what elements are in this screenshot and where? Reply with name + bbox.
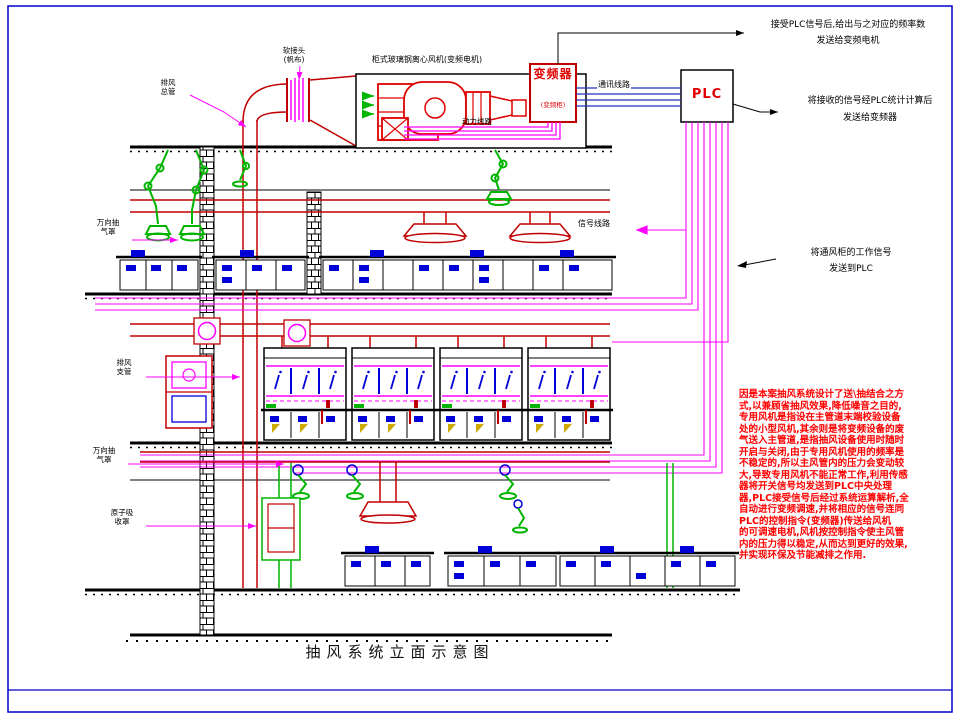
- lab-bench: [341, 546, 434, 586]
- callout-main-duct: 排风总管: [146, 79, 190, 96]
- plc-note-leader: [733, 104, 778, 112]
- roof-elbow-duct: [243, 84, 288, 122]
- callout-atomic-absorption: 原子吸收罩: [98, 509, 146, 526]
- fume-hood: [349, 336, 437, 440]
- plc-label: PLC: [681, 88, 733, 103]
- signal-line-label: 信号线路: [578, 219, 610, 228]
- inlet-cone: [310, 76, 356, 146]
- bench-row-1: [116, 250, 616, 290]
- comm-lines: [576, 88, 681, 106]
- shaft-hatch-mid: [307, 192, 321, 294]
- vav-fan-units: [194, 318, 310, 346]
- fume-hood: [437, 336, 525, 440]
- fan-label: 柜式玻璃钢离心风机(变频电机): [352, 55, 502, 64]
- callout-branch-duct: 排风支管: [102, 359, 146, 376]
- exhaust-hood-level4: [360, 502, 416, 523]
- lab-bench: [319, 250, 616, 290]
- plc-note-line2: 发送给变频器: [782, 113, 958, 123]
- drawing-title: 抽风系统立面示意图: [290, 644, 510, 661]
- callout-flex-joint: 软接头(帆布): [270, 47, 318, 64]
- control-cabinet: [166, 356, 212, 428]
- lab-bench: [116, 250, 202, 290]
- callout-extraction-hood-2: 万向抽气罩: [80, 447, 128, 464]
- bench-row-2: [341, 546, 739, 586]
- lab-bench: [212, 250, 309, 290]
- vfd-note-line2: 发送给变频电机: [740, 36, 956, 46]
- atomic-absorption-unit: [262, 463, 300, 588]
- hood-note-leader: [737, 259, 776, 268]
- fume-hood: [261, 336, 349, 440]
- lab-bench: [556, 546, 739, 586]
- system-description: 因是本案抽风系统设计了送\抽结合之方 式,以兼顾省抽风效果,降低噪音之目的, 专…: [739, 389, 953, 562]
- fume-hood: [525, 336, 613, 440]
- vfd-note-line1: 接受PLC信号后,给出与之对应的频率数: [740, 20, 956, 30]
- vfd-sub-label: (变频柜): [530, 102, 576, 109]
- comm-line-label: 通讯线路: [597, 80, 631, 89]
- flex-connector: [287, 78, 309, 122]
- hood-signal-note-line2: 发送到PLC: [776, 264, 926, 274]
- plc-note-line1: 将接收的信号经PLC统计计算后: [782, 96, 958, 106]
- lab-bench: [444, 546, 560, 586]
- callout-extraction-hood-1: 万向抽气罩: [84, 219, 132, 236]
- vfd-label: 变频器: [530, 68, 576, 82]
- power-line-label: 动力线路: [462, 118, 492, 127]
- hood-signal-note-line1: 将通风柜的工作信号: [776, 248, 926, 258]
- extraction-arms-level4: [293, 465, 527, 533]
- vfd-note-leader: [558, 33, 744, 64]
- cad-drawing-page: 柜式玻璃钢离心风机(变频电机) 变频器 (变频柜) PLC 通讯线路 动力线路 …: [0, 0, 960, 720]
- fume-hoods: [261, 336, 613, 440]
